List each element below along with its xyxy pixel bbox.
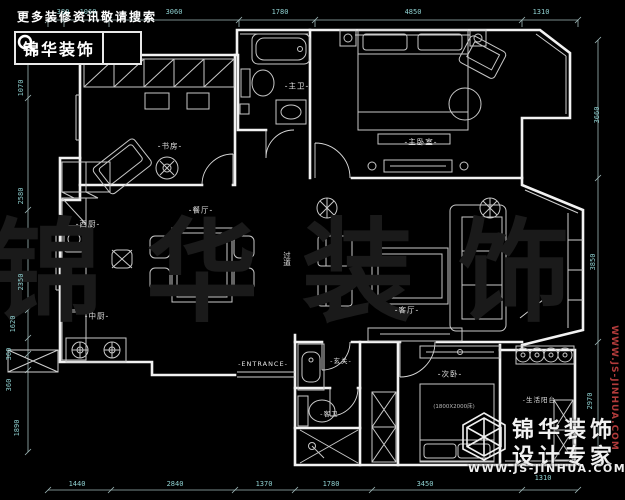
dim-left-4: 360: [5, 348, 13, 361]
brand-cube-icon: [460, 410, 508, 462]
room-label-west-kitchen: -西厨-: [76, 219, 100, 230]
dim-top-3: 1780: [272, 8, 289, 16]
dim-top-5: 1310: [533, 8, 550, 16]
watermark-url: WWW.JS-JINHUA.COM: [468, 462, 625, 475]
dim-bottom-3: 1780: [323, 480, 340, 488]
dim-right-0: 3660: [593, 107, 601, 124]
dim-bottom-0: 1440: [69, 480, 86, 488]
dim-left-5: 360: [5, 379, 13, 392]
dim-top-4: 4850: [405, 8, 422, 16]
room-label-entrance: -ENTRANCE-: [238, 360, 288, 368]
search-icon[interactable]: [104, 33, 140, 63]
dim-bottom-2: 1370: [256, 480, 273, 488]
room-label-service-balcony: -生活阳台-: [523, 394, 560, 404]
dim-top-2: 3060: [166, 8, 183, 16]
room-label-chinese-kitchen: -中厨-: [85, 311, 109, 322]
dim-left-3: 1620: [9, 316, 17, 333]
dim-left-0: 1070: [17, 80, 25, 97]
dim-right-2: 2970: [586, 393, 594, 410]
search-tagline: 更多装修资讯敬请搜索: [17, 8, 157, 25]
room-label-hallway: 过道: [282, 252, 293, 267]
dim-left-1: 2580: [17, 188, 25, 205]
room-label-master-bedroom: -主卧室-: [405, 137, 438, 148]
dim-left-6: 1890: [13, 420, 21, 437]
room-label-guest-bath: -客卫-: [320, 408, 342, 418]
dim-bottom-1: 2840: [167, 480, 184, 488]
room-label-master-bath: -主卫-: [285, 81, 309, 92]
dim-bottom-4: 3450: [417, 480, 434, 488]
room-label-living: -客厅-: [395, 305, 419, 316]
dim-right-1: 3850: [589, 254, 597, 271]
dim-bottom-5: 1310: [535, 474, 552, 482]
brand-search-box[interactable]: 锦华装饰: [14, 31, 142, 65]
room-label-dining: -餐厅-: [189, 205, 213, 216]
room-label-bed-note: (1800X2000床): [433, 402, 475, 410]
dim-left-2: 2350: [17, 274, 25, 291]
room-label-study: -书房-: [158, 141, 182, 152]
floorplan-page: 锦华装饰: [0, 0, 625, 500]
room-label-foyer: -玄关-: [330, 355, 352, 365]
room-label-second-bedroom: -次卧-: [438, 369, 462, 380]
